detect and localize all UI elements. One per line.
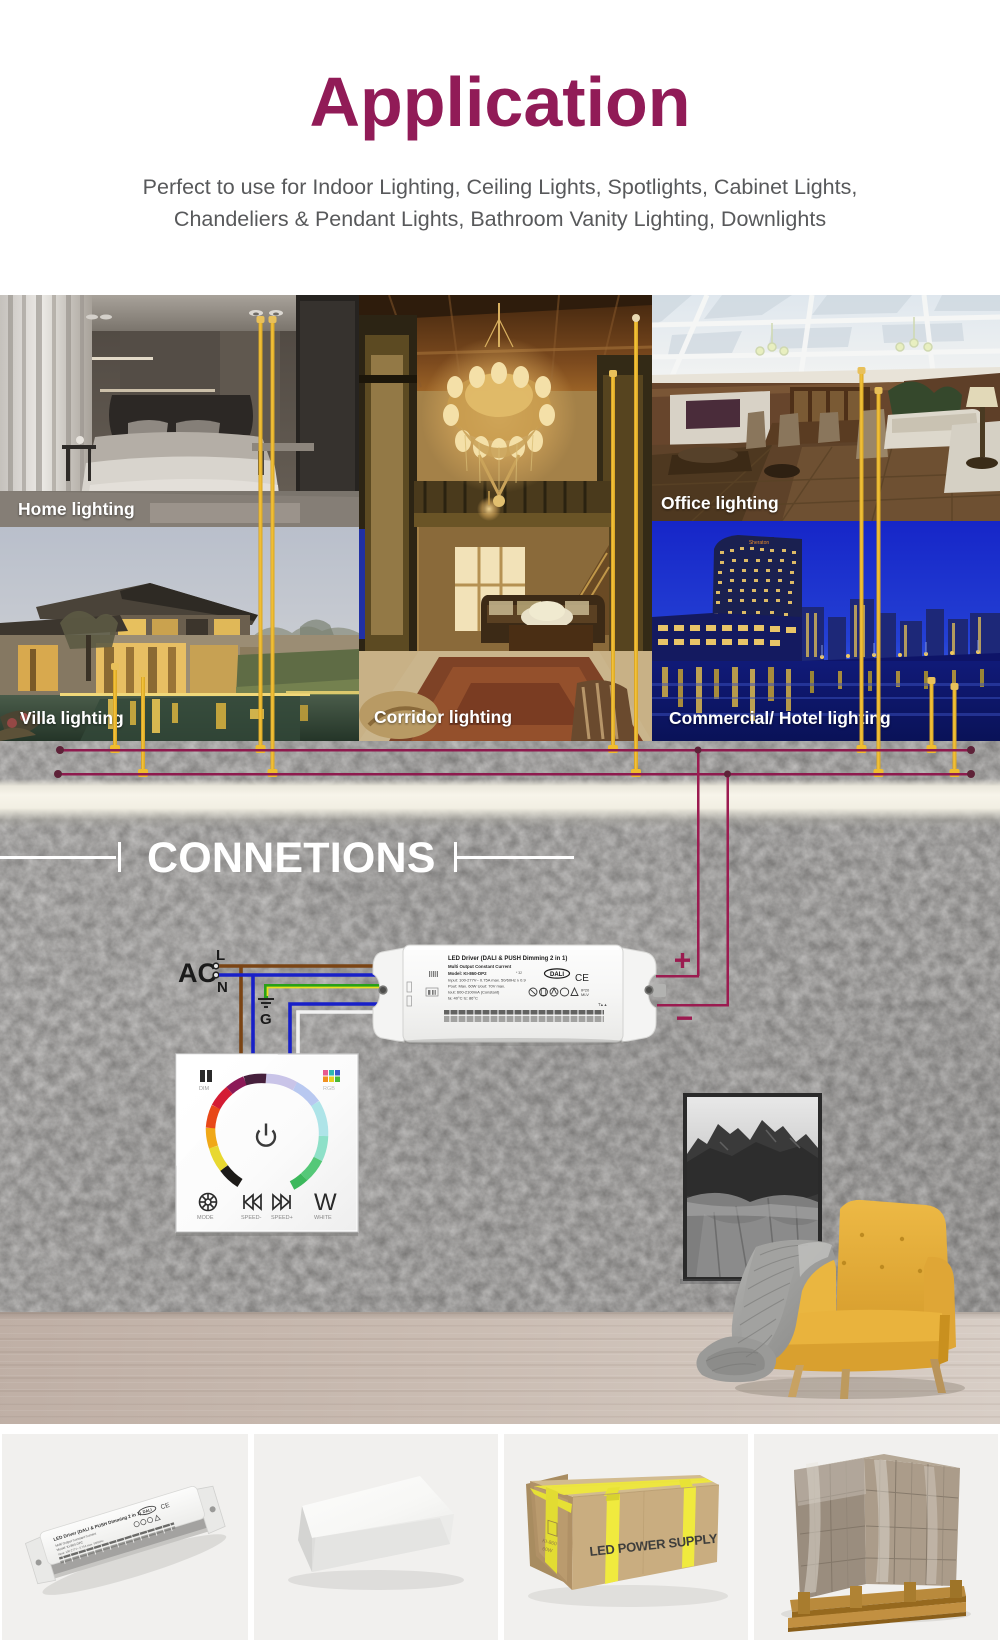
svg-text:RGB: RGB: [323, 1086, 335, 1092]
svg-text:SPEED+: SPEED+: [271, 1215, 293, 1221]
svg-text:MODE: MODE: [197, 1215, 214, 1221]
svg-text:MLV: MLV: [581, 992, 589, 997]
svg-text:W: W: [314, 1189, 337, 1216]
svg-text:AC: AC: [178, 958, 217, 988]
svg-text:LED Driver (DALI & PUSH Dimmin: LED Driver (DALI & PUSH Dimming 2 in 1): [448, 956, 567, 962]
svg-text:Input: 100-277V~ 0.75A max. 50: Input: 100-277V~ 0.75A max. 50/60Hz λ 0.…: [448, 978, 526, 983]
svg-text:CE: CE: [575, 973, 589, 984]
svg-text:Pout: Max. 60W Uout: 70V max.: Pout: Max. 60W Uout: 70V max.: [448, 984, 505, 989]
svg-text:Multi Output Constant Current: Multi Output Constant Current: [448, 964, 512, 969]
svg-text:G: G: [260, 1011, 272, 1028]
svg-text:SPEED-: SPEED-: [241, 1215, 262, 1221]
svg-text:WHITE: WHITE: [314, 1215, 332, 1221]
svg-text:L: L: [216, 947, 225, 964]
svg-text:T▴ ▴: T▴ ▴: [598, 1002, 607, 1007]
svg-text:DALI: DALI: [550, 972, 564, 978]
svg-text:ta: 40°C tc: 86°C: ta: 40°C tc: 86°C: [448, 996, 478, 1001]
svg-text:* 32: * 32: [516, 971, 522, 975]
svg-text:DIM: DIM: [199, 1086, 210, 1092]
svg-text:N: N: [217, 979, 228, 996]
svg-text:Model: KI-860-DP2: Model: KI-860-DP2: [448, 971, 487, 976]
svg-text:Iout: 600-2100mA (Constant): Iout: 600-2100mA (Constant): [448, 990, 500, 995]
